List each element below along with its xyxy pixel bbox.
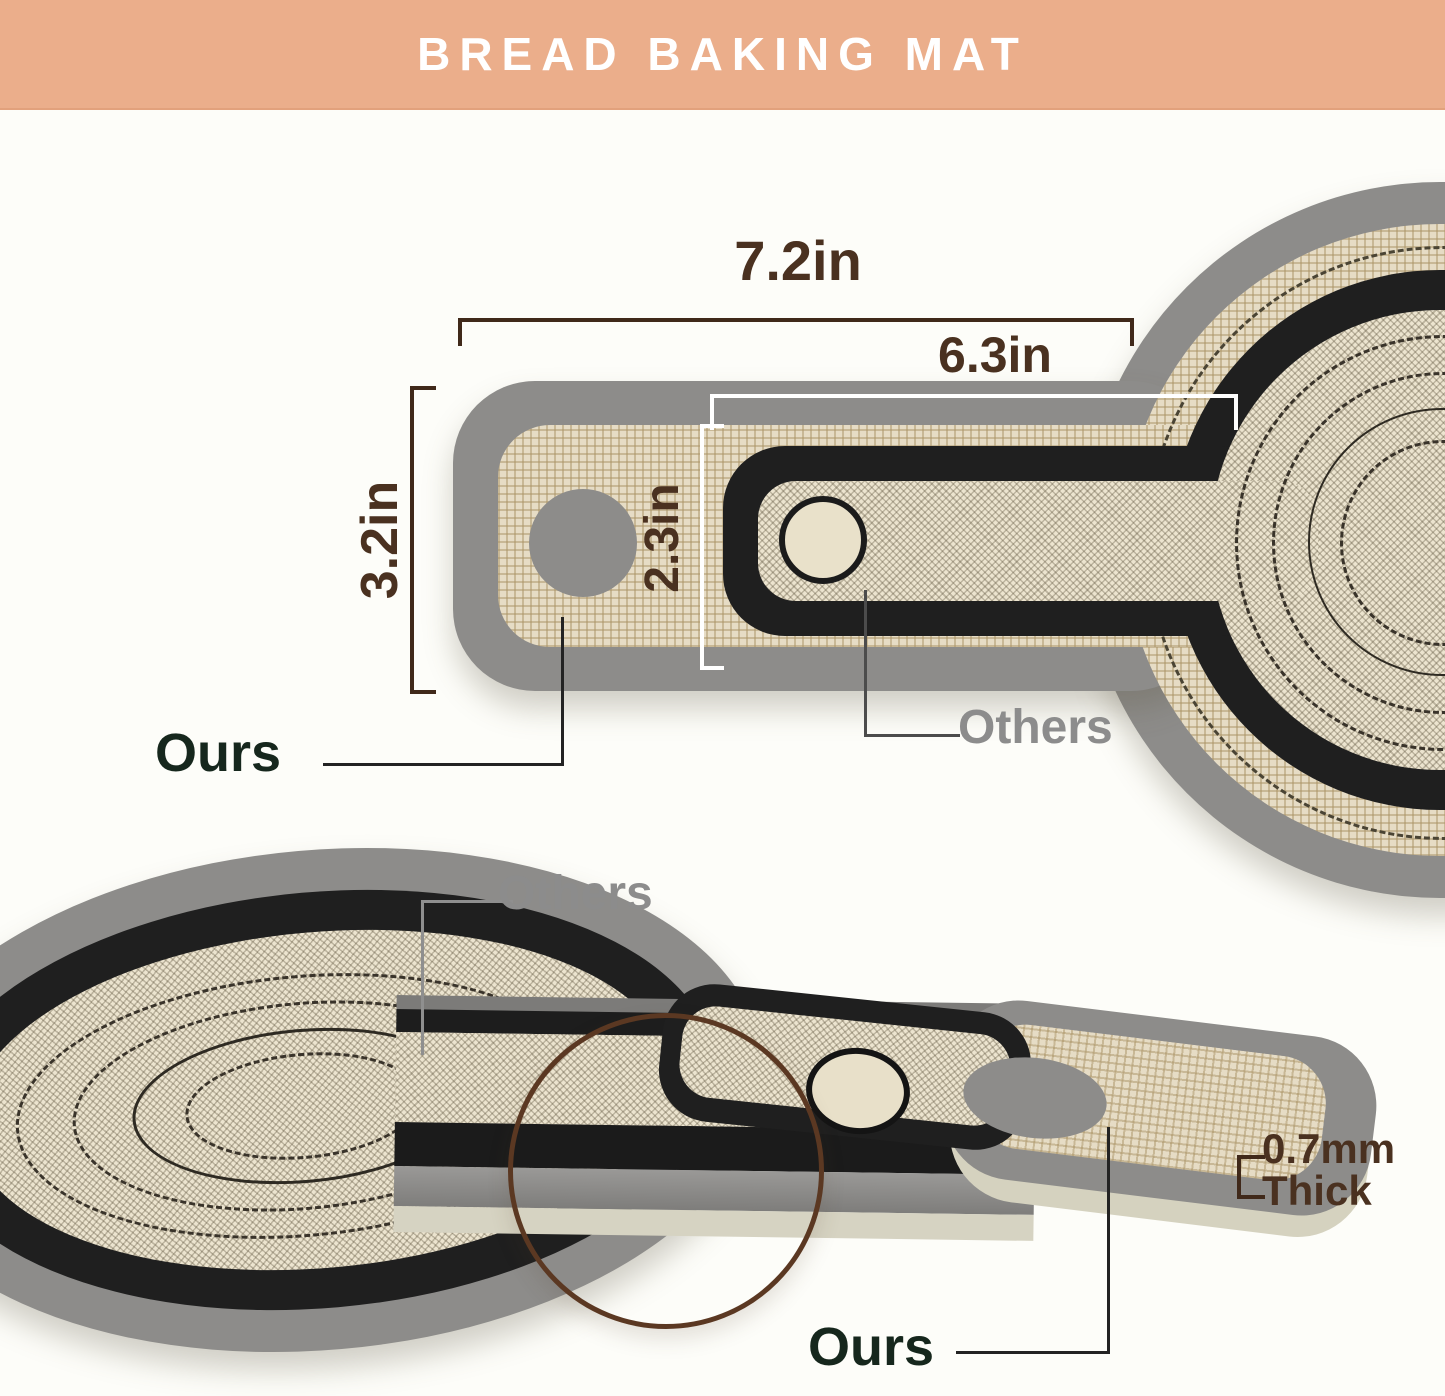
ours-bottom-leader-line <box>1107 1127 1110 1354</box>
thickness-word: Thick <box>1262 1170 1445 1212</box>
page-title: BREAD BAKING MAT <box>417 27 1028 81</box>
thickness-value: 0.7mm <box>1262 1128 1445 1170</box>
magnifier-circle <box>508 1013 824 1329</box>
ours-label-bottom: Ours <box>808 1316 934 1378</box>
ours-bottom-leader-line <box>956 1351 1110 1354</box>
others-bottom-leader-line <box>421 900 424 1055</box>
bracket-6-3in <box>710 394 1238 430</box>
product-infographic: BREAD BAKING MAT 7.2in 6.3in 3.2in 2.3in… <box>0 0 1445 1396</box>
dimension-ours-width: 7.2in <box>648 228 948 293</box>
dimension-others-width: 6.3in <box>845 326 1145 384</box>
ours-top-leader-line <box>561 617 564 766</box>
dimension-ours-height: 3.2in <box>302 450 458 630</box>
others-label-bottom: Others <box>498 866 653 921</box>
ours-label-top: Ours <box>155 722 281 784</box>
ours-top-leader-line <box>323 763 563 766</box>
others-top-leader-line <box>864 590 867 737</box>
thickness-bracket <box>1237 1155 1265 1199</box>
others-mat-hanging-hole <box>779 496 867 584</box>
header-banner: BREAD BAKING MAT <box>0 0 1445 110</box>
others-top-leader-line <box>864 734 960 737</box>
dimension-others-height: 2.3in <box>584 448 740 628</box>
thickness-callout: 0.7mm Thick <box>1262 1128 1445 1212</box>
others-label-top: Others <box>958 700 1113 755</box>
